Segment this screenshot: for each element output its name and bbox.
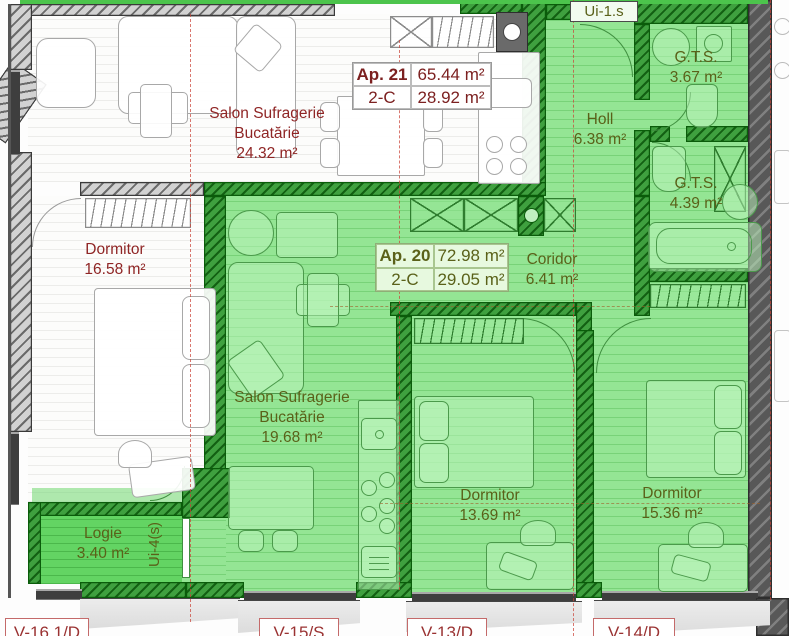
window-logie	[36, 589, 82, 600]
pillow-icon	[714, 431, 742, 475]
toilet-icon	[686, 84, 718, 128]
neighbour-fixture	[774, 150, 789, 204]
window-label-v16: V-16.1/D	[5, 618, 89, 636]
chair-icon	[423, 138, 443, 168]
room-label-salon20: Salon Sufragerie Bucatărie 19.68 m²	[202, 388, 382, 447]
window-left-upper	[11, 70, 20, 155]
wall-logie-left	[28, 502, 41, 584]
closet-icon	[544, 198, 576, 232]
wall-right-party	[748, 0, 772, 598]
centerline-vertical	[770, 0, 771, 600]
chair-icon	[238, 530, 264, 552]
apartment-total-area: 65.44 m²	[411, 63, 491, 86]
room-label-dormitor21: Dormitor 16.58 m²	[25, 240, 205, 280]
room-label-dormitor15: Dormitor 15.36 m²	[602, 484, 742, 524]
parapet-dorm-divider	[576, 582, 602, 598]
apartment-info-ap21: Ap. 21 65.44 m² 2-C 28.92 m²	[352, 62, 492, 110]
window-frame-left-edge	[8, 4, 11, 598]
apartment-type: 2-C	[376, 268, 434, 292]
window-label-v15: V-15/S	[259, 618, 339, 636]
door-leaf-logie	[182, 518, 190, 578]
bathtub-icon	[648, 222, 762, 272]
coffee-table-icon	[140, 84, 172, 138]
closet-icon	[410, 198, 464, 232]
chair-icon	[688, 522, 724, 548]
top-green-strip	[20, 0, 768, 4]
room-label-logie: Logie 3.40 m²	[48, 524, 158, 564]
sill-logie	[80, 598, 240, 629]
wardrobe-icon	[432, 16, 494, 48]
pillow-icon	[182, 296, 210, 360]
coffee-table-icon	[307, 273, 339, 327]
niche-icon	[518, 196, 544, 236]
apartment-name: Ap. 20	[376, 244, 434, 268]
armchair-icon	[36, 38, 96, 108]
wall-holl-top	[546, 4, 572, 20]
tv-stand-icon	[276, 212, 338, 258]
window-left-lower	[11, 432, 19, 505]
wall-left-mid	[10, 152, 32, 432]
entrance-door-label: Ui-1.s	[570, 1, 638, 22]
window-label-v14: V-14/D	[593, 618, 675, 636]
wall-gts-divider-b	[686, 126, 748, 142]
apartment-total-area: 72.98 m²	[434, 244, 508, 268]
fridge-icon	[496, 12, 528, 52]
apartment-type: 2-C	[353, 86, 411, 109]
neighbour-fixture	[774, 18, 789, 35]
apartment-living-area: 28.92 m²	[411, 86, 491, 109]
chair-icon	[118, 440, 152, 468]
chair-icon	[272, 530, 298, 552]
window-label-v13: V-13/D	[407, 618, 487, 636]
centerline-horizontal	[330, 306, 650, 307]
stove-icon	[359, 472, 397, 532]
room-label-gts-upper: G.T.S. 3.67 m²	[646, 48, 746, 88]
room-label-dormitor13: Dormitor 13.69 m²	[420, 486, 560, 526]
pillow-icon	[419, 443, 449, 483]
closet-icon	[390, 16, 432, 48]
apartment-name: Ap. 21	[353, 63, 411, 86]
parapet-logie	[80, 582, 186, 598]
logie-door-label: Ui-4(s)	[146, 504, 168, 586]
parapet-salon-left	[186, 582, 244, 598]
room-label-holl: Holl 6.38 m²	[556, 110, 644, 150]
wall-coridor-dorm13	[390, 302, 576, 316]
wardrobe-icon	[85, 198, 191, 228]
wardrobe-icon	[414, 318, 524, 344]
wall-top	[28, 4, 335, 16]
wall-left-upper	[10, 4, 32, 70]
pillow-icon	[714, 385, 742, 429]
neighbour-fixture	[774, 330, 789, 402]
floor-plan: Ap. 21 65.44 m² 2-C 28.92 m² Ap. 20 72.9…	[0, 0, 789, 636]
centerline-vertical	[573, 0, 574, 636]
pillow-icon	[419, 401, 449, 441]
apartment-info-ap20: Ap. 20 72.98 m² 2-C 29.05 m²	[375, 243, 509, 292]
wall-living-dormitor	[80, 182, 204, 196]
dining-table-icon	[228, 466, 314, 530]
neighbour-fixture	[774, 62, 789, 79]
wall-ap21-ap20-boundary	[204, 182, 546, 196]
wardrobe-icon	[650, 284, 746, 308]
closet-icon	[464, 198, 518, 232]
centerline-vertical	[399, 40, 400, 590]
round-table-icon	[228, 210, 274, 256]
room-label-salon21: Salon Sufragerie Bucatărie 24.32 m²	[177, 104, 357, 163]
room-label-coridor: Coridor 6.41 m²	[506, 250, 598, 290]
radiator-icon	[361, 546, 397, 578]
stove-icon	[482, 132, 534, 178]
room-label-gts-lower: G.T.S. 4.39 m²	[646, 174, 746, 214]
apartment-living-area: 29.05 m²	[434, 268, 508, 292]
wall-dorm13-dorm15	[576, 330, 594, 590]
